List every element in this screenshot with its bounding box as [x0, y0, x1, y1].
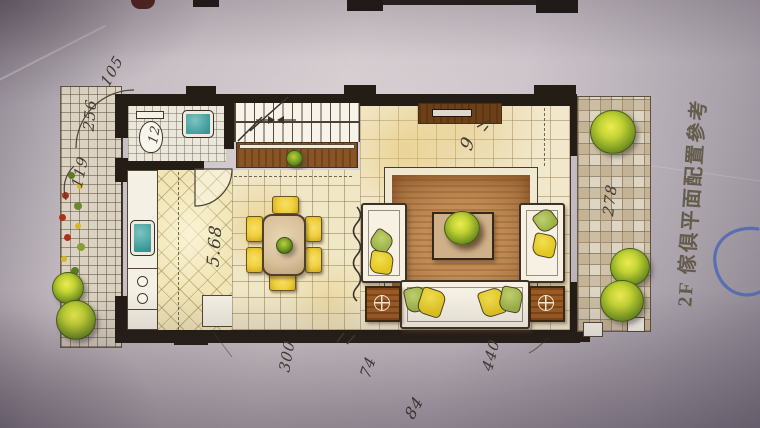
pencil-stroke [529, 338, 548, 353]
pencil-stroke [213, 332, 232, 357]
handwritten-tick [337, 333, 355, 344]
curtain-wavy-line [354, 207, 361, 301]
stair-arrowheads [268, 116, 284, 124]
door-swing-arc [195, 169, 232, 206]
blue-pen-mark [715, 228, 760, 295]
dim-568: 5.68 [203, 215, 227, 276]
floor-plan-photo: 105 256 119 12 5.68 9 278 300 74 440 84 … [0, 0, 760, 428]
